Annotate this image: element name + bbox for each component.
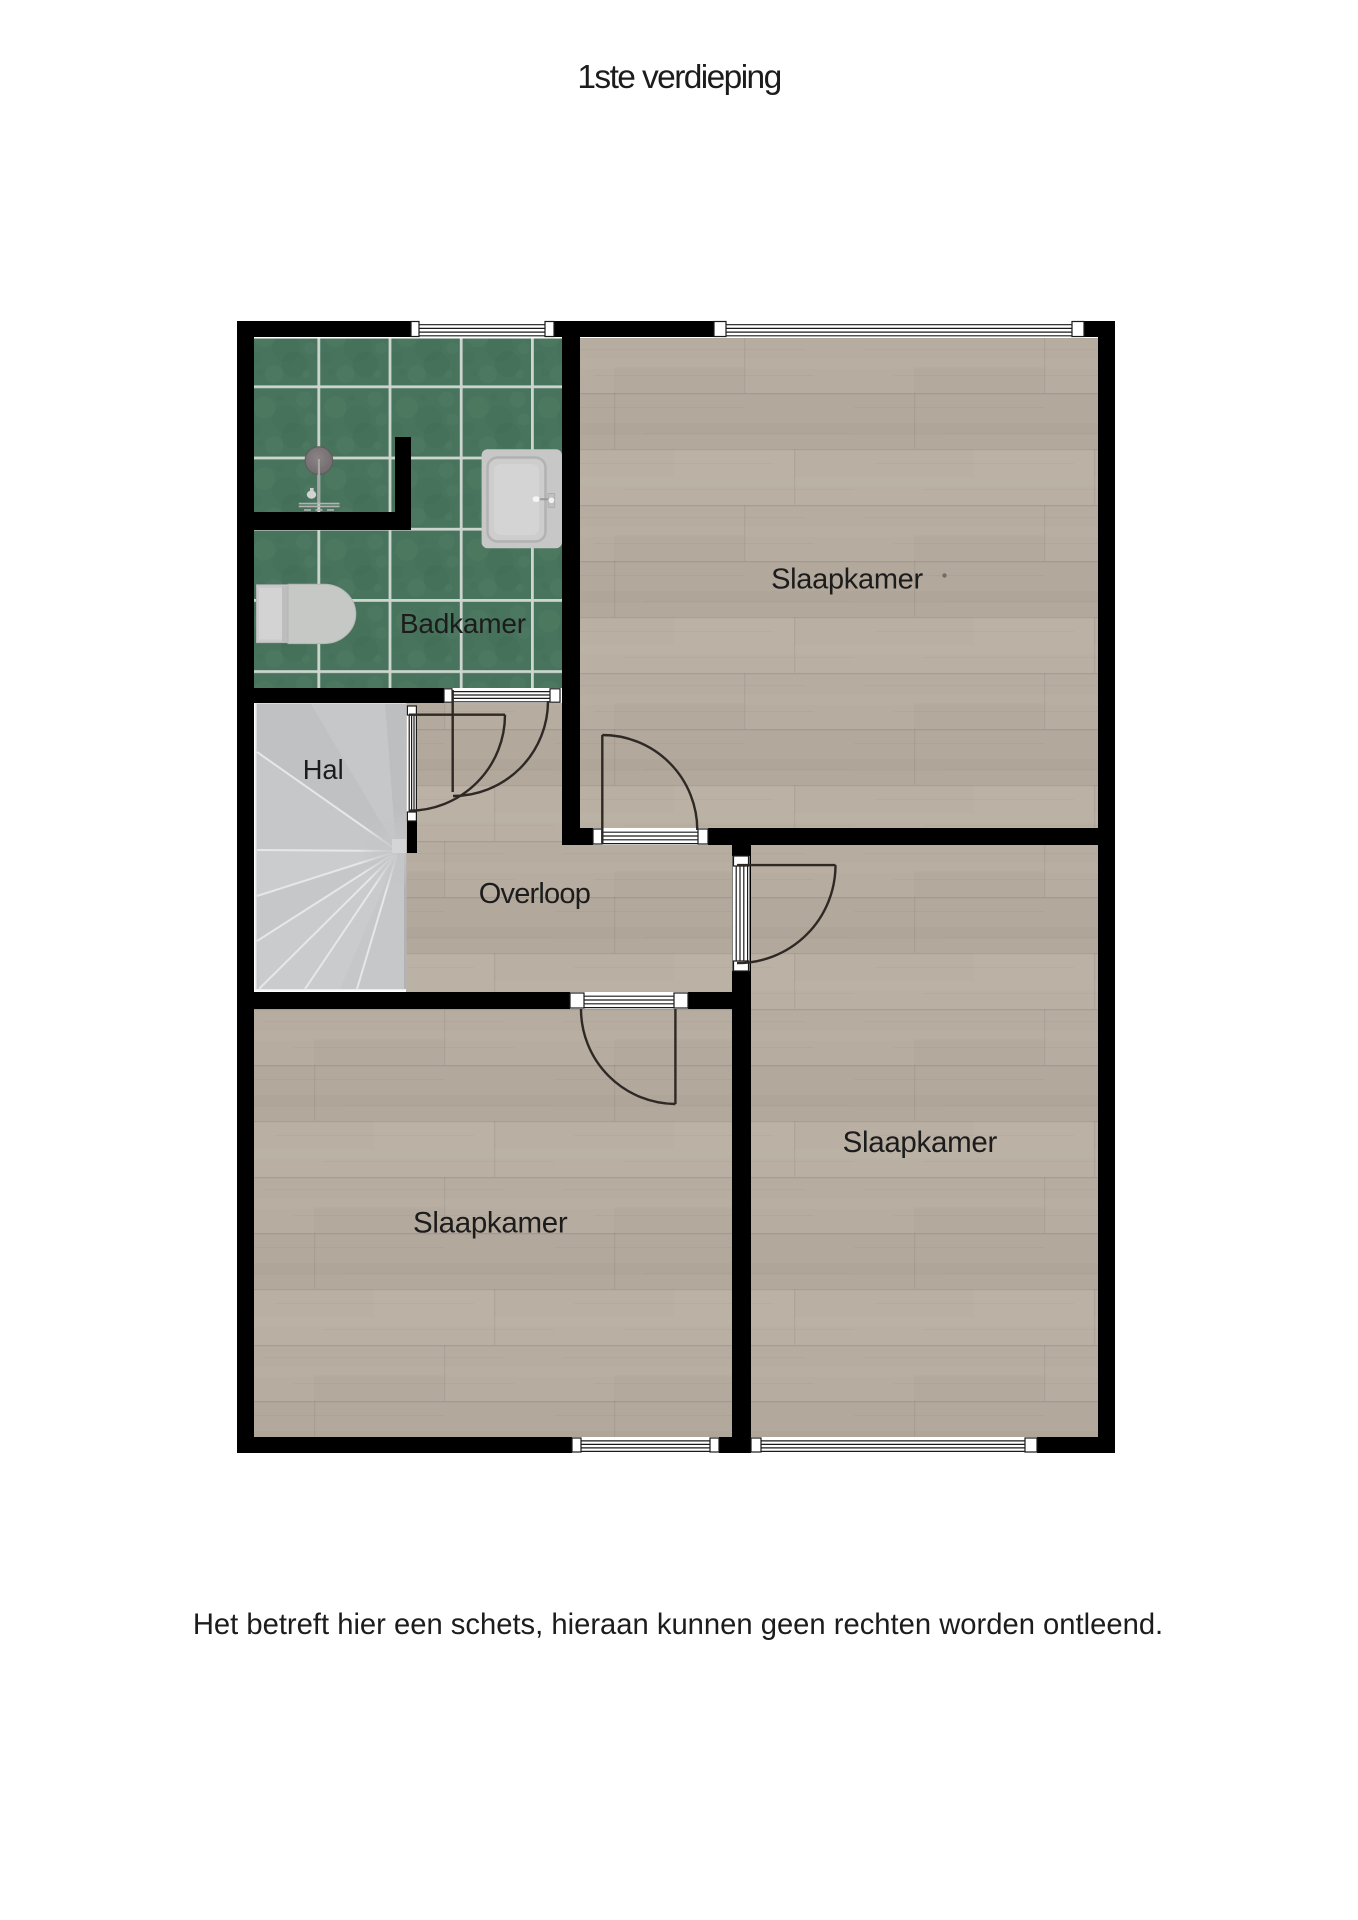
svg-text:Het betreft hier een schets, h: Het betreft hier een schets, hieraan kun… [193, 1609, 1163, 1641]
svg-text:Slaapkamer: Slaapkamer [843, 1126, 998, 1159]
svg-text:Slaapkamer: Slaapkamer [771, 564, 923, 596]
svg-text:Overloop: Overloop [479, 878, 590, 910]
svg-text:Hal: Hal [303, 754, 344, 785]
svg-text:Slaapkamer: Slaapkamer [413, 1207, 568, 1240]
svg-text:Badkamer: Badkamer [400, 608, 526, 639]
svg-text:1ste verdieping: 1ste verdieping [577, 59, 780, 96]
